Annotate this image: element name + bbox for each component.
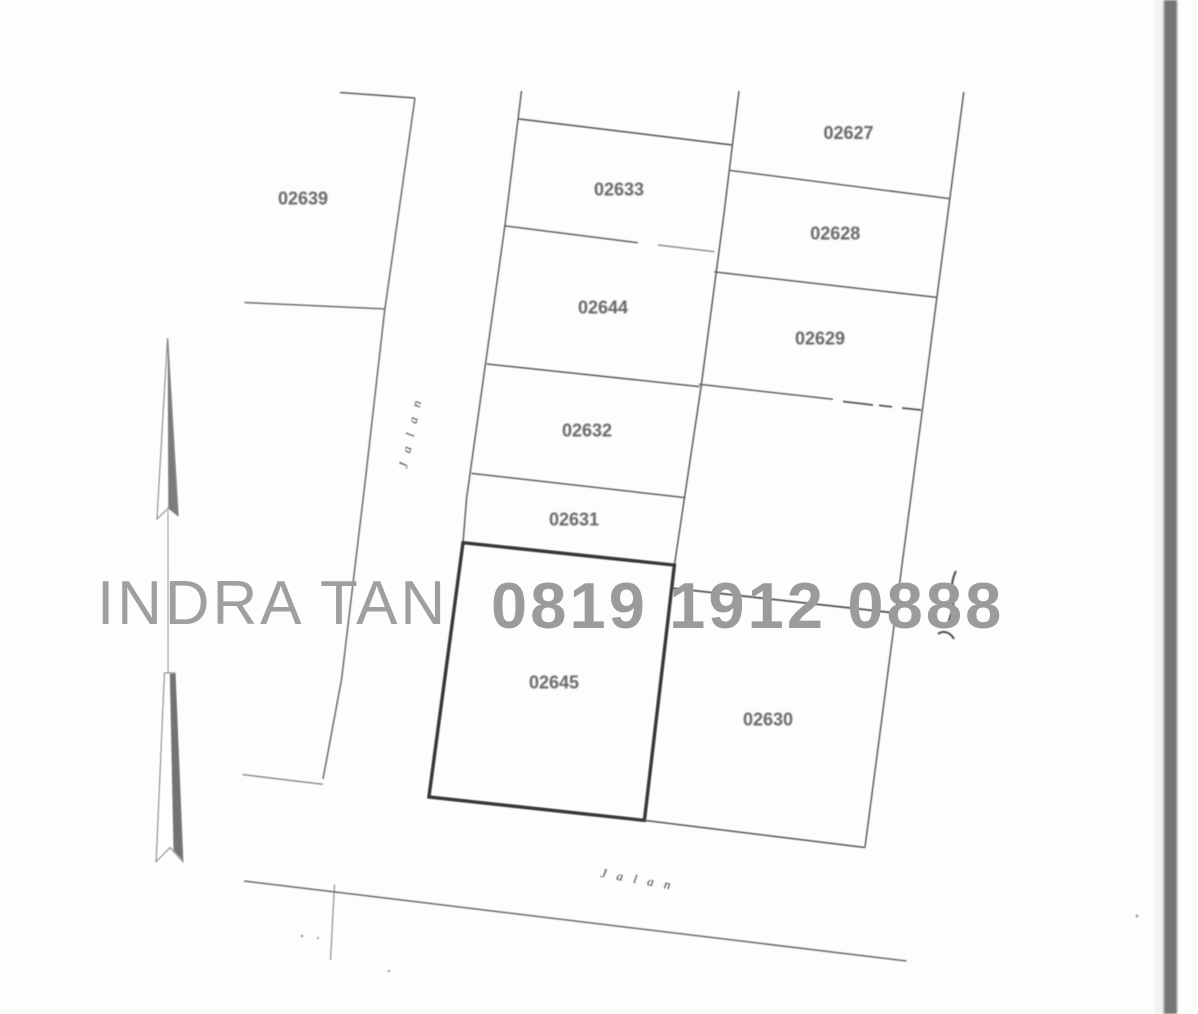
svg-text:02639: 02639 — [278, 189, 328, 209]
svg-text:02628: 02628 — [810, 224, 860, 244]
svg-text:Jalan: Jalan — [599, 865, 682, 894]
svg-text:02645: 02645 — [529, 673, 579, 693]
svg-text:Jalan: Jalan — [395, 389, 426, 469]
svg-text:02631: 02631 — [549, 510, 599, 530]
svg-text:02627: 02627 — [823, 123, 873, 143]
svg-text:INDRA TAN: INDRA TAN — [97, 569, 448, 638]
svg-text:02644: 02644 — [578, 298, 628, 318]
svg-text:02632: 02632 — [562, 421, 612, 441]
svg-text:02630: 02630 — [743, 710, 793, 730]
svg-text:0819 1912 0888: 0819 1912 0888 — [491, 569, 1004, 642]
svg-text:02633: 02633 — [594, 180, 644, 200]
svg-text:02629: 02629 — [795, 329, 845, 349]
